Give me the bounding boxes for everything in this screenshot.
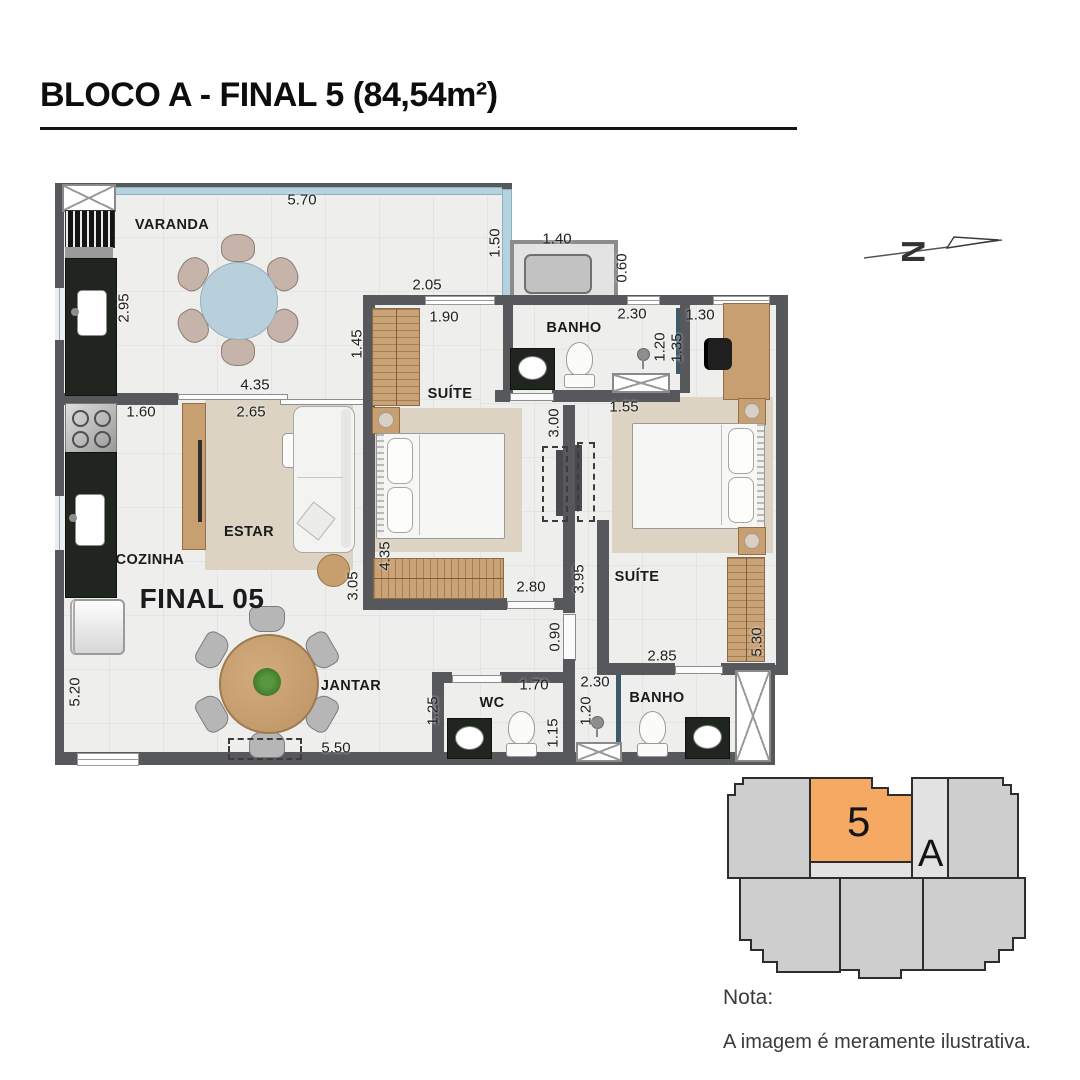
sofa [293,406,355,553]
keyplan-unit-right [948,778,1018,878]
dim-label: 4.35 [377,541,394,570]
pocket-door-dash-right [577,442,595,522]
dim-label: 2.85 [647,648,676,665]
dim-label: 0.90 [547,622,564,651]
dim-label: 1.55 [609,399,638,416]
duvet-fold [419,435,420,535]
wall-left [55,183,64,765]
dim-label: 4.35 [240,377,269,394]
room-label-estar: ESTAR [224,524,274,540]
dim-label: 2.80 [516,579,545,596]
toilet-bowl [508,711,535,745]
dim-label: 1.30 [685,307,714,324]
dim-label: 1.70 [519,677,548,694]
note-body: A imagem é meramente ilustrativa. [723,1031,1031,1054]
burner-icon [94,431,111,448]
dim-label: 2.30 [617,306,646,323]
unit-label: FINAL 05 [140,583,265,615]
suite2-bed [632,423,765,529]
grill-shelf [65,247,113,258]
kitchen-sink [75,494,105,546]
suite2-desk-chair [704,338,732,370]
duvet-fold [721,425,722,525]
ac-condenser [524,254,592,294]
varanda-faucet [71,308,79,316]
shower1-mat [612,373,670,393]
tv [198,440,202,522]
pocket-door-dash-left [542,446,568,522]
burner-icon [72,410,89,427]
jantar-projection-dash [228,738,302,760]
dim-label: 5.50 [321,740,350,757]
dim-label: 1.20 [578,696,595,725]
left-wall-window-1 [55,288,64,340]
note-heading: Nota: [723,986,773,1010]
suite2-nightstand-knob [744,403,760,419]
shower2-arm [596,728,598,737]
grill [65,210,115,248]
dim-label: 1.20 [652,332,669,361]
room-label-banho2: BANHO [629,690,684,706]
suite1-window [425,296,495,305]
toilet-tank [506,743,537,757]
dim-label: 0.60 [614,253,631,282]
dim-label: 1.45 [349,329,366,358]
pillow [728,477,754,523]
dim-label: 5.20 [67,677,84,706]
varanda-chair [221,338,255,366]
hall-door [563,614,576,661]
toilet-tank [564,374,595,388]
north-label: N [895,240,931,263]
dim-label: 2.65 [236,404,265,421]
shaft-bottom-right [735,670,771,762]
fridge [70,599,125,655]
room-label-suite2: SUÍTE [615,569,660,585]
dim-label: 3.95 [571,564,588,593]
wall-suite2-left-lower [597,520,609,675]
dim-label: 1.35 [669,333,686,362]
page-title: BLOCO A - FINAL 5 (84,54m²) [40,76,797,130]
dim-label: 1.90 [429,309,458,326]
suite2-door [675,666,723,674]
north-arrowhead-icon [947,237,999,248]
banho1-door [510,393,554,401]
room-label-wc: WC [480,695,505,711]
dim-label: 1.40 [542,231,571,248]
dim-label: 5.30 [749,627,766,656]
left-wall-window-2 [55,496,64,550]
room-label-varanda: VARANDA [135,217,209,233]
banho1-toilet [564,342,594,388]
room-label-cozinha: COZINHA [116,552,185,568]
room-label-suite1: SUÍTE [428,386,473,402]
shaft-top-left [62,184,116,212]
keyplan-unit-number: 5 [847,798,870,845]
suite1-bed [376,433,505,539]
toilet-bowl [566,342,593,376]
suite2-nightstand-knob2 [744,533,760,549]
tv-panel [182,403,206,550]
dim-label: 2.95 [116,293,133,322]
floor-plan: VARANDA SUÍTE BANHO ESTAR COZINHA FINAL … [50,178,790,778]
keyplan-unit-left [728,778,810,878]
pillow [387,438,413,484]
building-keyplan: 5 A [715,770,1035,985]
varanda-glass-table [200,262,278,340]
suite1-headboard [377,434,384,536]
banho1-window [627,296,660,305]
dim-label: 5.70 [287,192,316,209]
shower2-mat [576,742,622,762]
wc-toilet [506,711,536,757]
banho2-sink [693,725,722,749]
toilet-bowl [639,711,666,745]
wall-suite1-bottom-a [363,598,507,610]
dim-label: 1.25 [425,696,442,725]
varanda-sliding-door-1 [178,394,288,400]
wall-banho1-bottom-a [495,390,510,402]
dim-label: 3.00 [546,408,563,437]
dim-label: 1.50 [487,228,504,257]
varanda-sink [77,290,107,336]
room-label-jantar: JANTAR [321,678,381,694]
suite2-headboard [757,424,764,526]
dim-label: 1.15 [545,718,562,747]
sofa-seam [297,477,343,478]
pillow [728,428,754,474]
banho2-toilet [637,711,667,757]
north-arrow: N [862,222,1012,274]
suite1-nightstand-knob [378,412,394,428]
banho1-sink [518,356,547,380]
pillow [387,487,413,533]
wc-sink [455,726,484,750]
wall-right [776,295,788,675]
shower1-arm [642,360,644,369]
floorplan-page: BLOCO A - FINAL 5 (84,54m²) [0,0,1080,1080]
sofa-pillow [296,501,335,540]
wall-wc-shower [563,672,575,765]
plant-icon [253,668,281,696]
wc-door [452,675,502,683]
dim-label: 1.60 [126,404,155,421]
dim-label: 2.30 [580,674,609,691]
keyplan-block-letter: A [918,833,944,875]
dim-label: 2.05 [412,277,441,294]
varanda-chair [221,234,255,262]
keyplan-unit-bottom-right [923,878,1025,970]
burner-icon [94,410,111,427]
suite1-door [507,601,555,609]
sofa-backrest [341,409,351,548]
kitchen-faucet [69,514,77,522]
banho2-shower-glass [616,672,621,745]
dim-label: 3.05 [345,571,362,600]
keyplan-unit-bottom-mid [840,878,923,978]
bottom-window [77,753,139,766]
toilet-tank [637,743,668,757]
suite1-wardrobe-top [372,308,420,406]
keyplan-unit-bottom-left [740,878,840,972]
room-label-banho1: BANHO [546,320,601,336]
burner-icon [72,431,89,448]
cooktop [65,403,117,453]
